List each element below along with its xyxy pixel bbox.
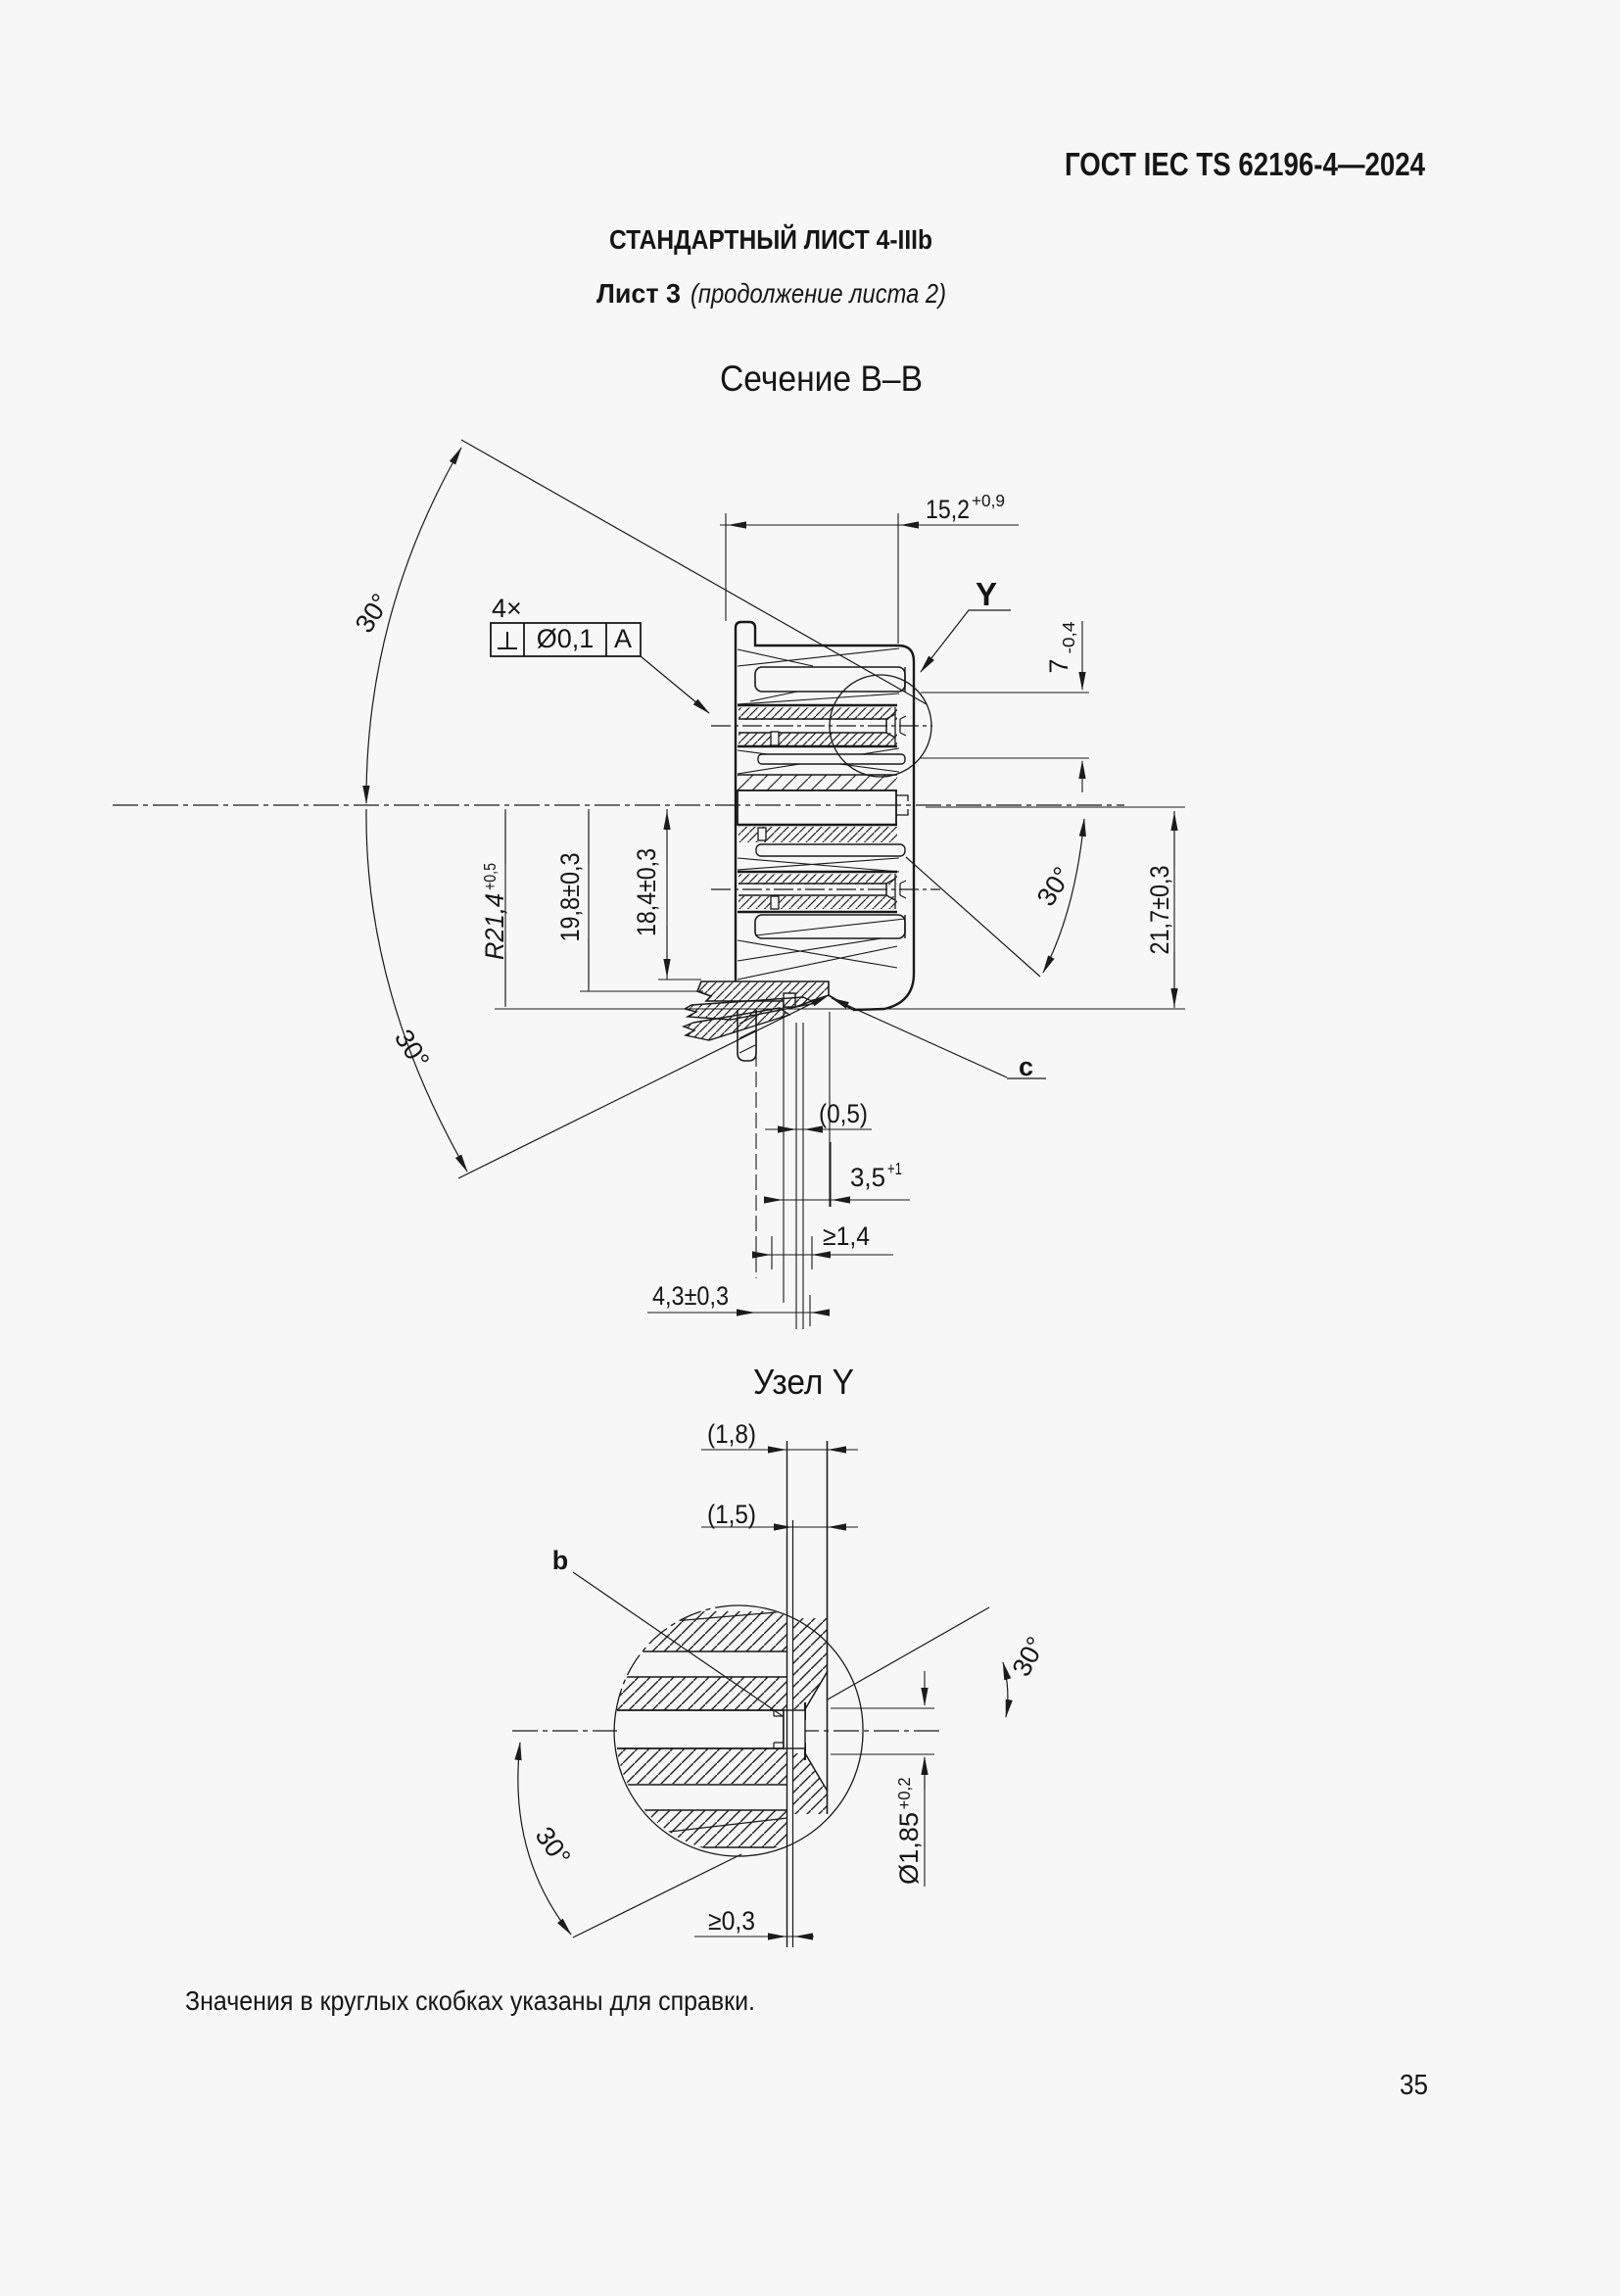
- svg-text:Узел Y: Узел Y: [753, 1362, 854, 1402]
- svg-text:Значения в круглых скобках ука: Значения в круглых скобках указаны для с…: [185, 1985, 755, 2016]
- svg-text:+0,5: +0,5: [480, 863, 500, 890]
- svg-text:18,4±0,3: 18,4±0,3: [632, 848, 661, 936]
- svg-text:Ø1,85: Ø1,85: [894, 1812, 924, 1885]
- svg-text:7: 7: [1044, 658, 1073, 673]
- svg-text:+0,9: +0,9: [972, 491, 1005, 510]
- svg-text:15,2: 15,2: [926, 495, 970, 524]
- svg-text:+1: +1: [887, 1159, 902, 1178]
- svg-text:≥0,3: ≥0,3: [708, 1906, 755, 1936]
- svg-text:Y: Y: [976, 576, 997, 612]
- svg-text:ГОСТ IEC TS 62196-4—2024: ГОСТ IEC TS 62196-4—2024: [1065, 146, 1426, 182]
- svg-text:Сечение В–В: Сечение В–В: [720, 359, 923, 399]
- svg-text:+0,2: +0,2: [894, 1778, 914, 1810]
- svg-text:4×: 4×: [492, 594, 522, 623]
- svg-text:35: 35: [1400, 2070, 1428, 2101]
- svg-text:21,7±0,3: 21,7±0,3: [1145, 866, 1174, 955]
- svg-text:СТАНДАРТНЫЙ ЛИСТ 4-IIIb: СТАНДАРТНЫЙ ЛИСТ 4-IIIb: [609, 223, 932, 255]
- svg-text:≥1,4: ≥1,4: [823, 1221, 870, 1251]
- svg-text:c: c: [1019, 1052, 1033, 1081]
- svg-text:19,8±0,3: 19,8±0,3: [555, 853, 585, 942]
- svg-text:Лист 3: Лист 3: [596, 278, 681, 309]
- svg-text:(1,5): (1,5): [707, 1500, 756, 1529]
- svg-text:3,5: 3,5: [850, 1163, 885, 1192]
- svg-text:-0,4: -0,4: [1059, 621, 1078, 653]
- svg-text:b: b: [552, 1546, 569, 1575]
- svg-text:A: A: [614, 624, 632, 653]
- svg-text:Ø0,1: Ø0,1: [537, 624, 595, 653]
- svg-text:R21,4: R21,4: [480, 893, 509, 960]
- svg-text:(0,5): (0,5): [819, 1099, 868, 1128]
- svg-text:4,3±0,3: 4,3±0,3: [652, 1281, 729, 1311]
- svg-text:(продолжение листа 2): (продолжение листа 2): [691, 278, 946, 309]
- svg-text:(1,8): (1,8): [707, 1419, 756, 1449]
